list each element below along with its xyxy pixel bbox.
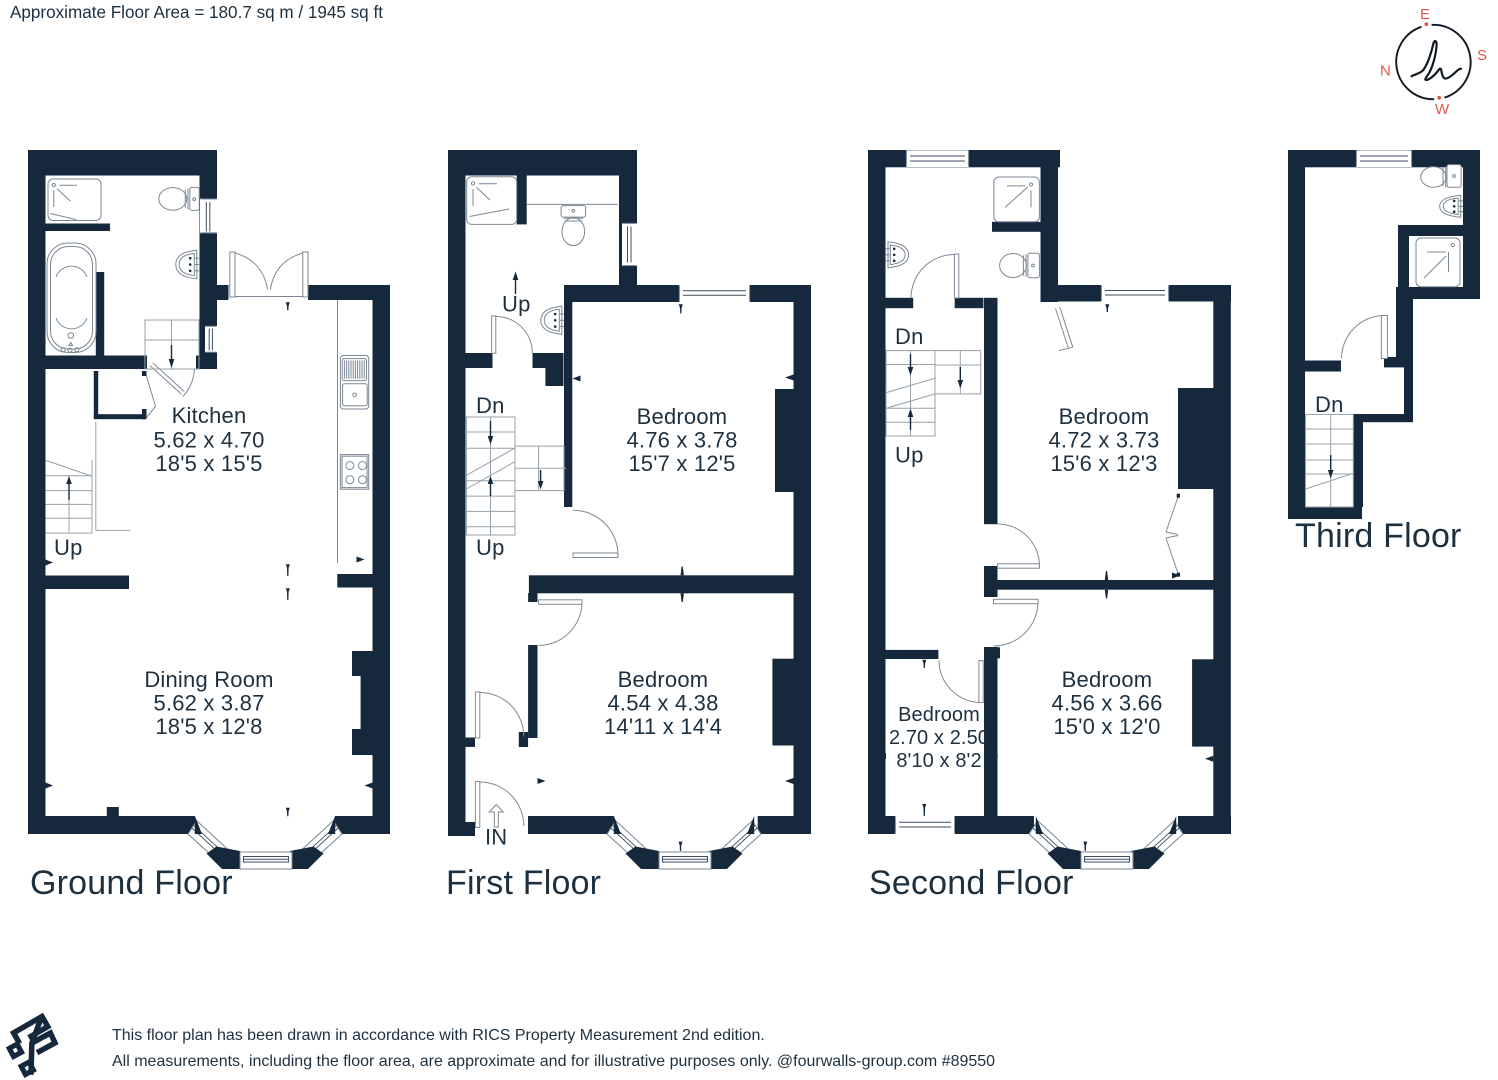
- svg-text:Up: Up: [54, 535, 83, 560]
- svg-text:Approximate Floor Area = 180.7: Approximate Floor Area = 180.7 sq m / 19…: [10, 3, 383, 22]
- svg-text:Dn: Dn: [895, 324, 924, 349]
- svg-text:14'11 x 14'4: 14'11 x 14'4: [604, 714, 722, 739]
- svg-text:Bedroom: Bedroom: [637, 404, 728, 429]
- svg-text:8'10 x 8'2: 8'10 x 8'2: [896, 750, 981, 772]
- svg-text:Ground Floor: Ground Floor: [30, 864, 233, 902]
- svg-text:18'5 x 12'8: 18'5 x 12'8: [155, 714, 262, 739]
- svg-text:Bedroom: Bedroom: [898, 704, 980, 726]
- svg-text:4.54 x 4.38: 4.54 x 4.38: [607, 691, 718, 716]
- svg-text:E: E: [1420, 6, 1431, 23]
- svg-text:15'6 x 12'3: 15'6 x 12'3: [1050, 451, 1157, 476]
- svg-text:IN: IN: [485, 825, 507, 850]
- svg-text:Bedroom: Bedroom: [1059, 404, 1150, 429]
- svg-text:This floor plan has been drawn: This floor plan has been drawn in accord…: [112, 1027, 765, 1044]
- svg-text:18'5 x 15'5: 18'5 x 15'5: [155, 451, 262, 476]
- svg-text:15'7 x 12'5: 15'7 x 12'5: [628, 451, 735, 476]
- svg-text:4.76 x 3.78: 4.76 x 3.78: [626, 428, 737, 453]
- svg-text:First Floor: First Floor: [446, 864, 601, 902]
- svg-text:All measurements, including th: All measurements, including the floor ar…: [112, 1053, 995, 1070]
- svg-text:N: N: [1380, 63, 1391, 80]
- svg-text:Third Floor: Third Floor: [1295, 517, 1462, 555]
- svg-text:S: S: [1477, 47, 1488, 64]
- svg-text:Dn: Dn: [476, 393, 505, 418]
- svg-text:Bedroom: Bedroom: [618, 667, 709, 692]
- svg-text:2.70 x 2.50: 2.70 x 2.50: [889, 727, 989, 749]
- svg-text:Dining Room: Dining Room: [144, 667, 273, 692]
- svg-text:Up: Up: [502, 292, 531, 317]
- svg-text:Bedroom: Bedroom: [1062, 667, 1153, 692]
- svg-text:5.62 x 4.70: 5.62 x 4.70: [153, 428, 264, 453]
- svg-text:4.56 x 3.66: 4.56 x 3.66: [1051, 691, 1162, 716]
- svg-text:Second Floor: Second Floor: [869, 864, 1074, 902]
- svg-text:4.72 x 3.73: 4.72 x 3.73: [1048, 428, 1159, 453]
- svg-text:W: W: [1435, 101, 1450, 118]
- svg-text:Up: Up: [895, 443, 924, 468]
- svg-text:Dn: Dn: [1315, 392, 1344, 417]
- svg-text:Kitchen: Kitchen: [172, 403, 247, 428]
- svg-text:15'0 x 12'0: 15'0 x 12'0: [1053, 714, 1160, 739]
- svg-text:Up: Up: [476, 535, 505, 560]
- svg-text:5.62 x 3.87: 5.62 x 3.87: [153, 691, 264, 716]
